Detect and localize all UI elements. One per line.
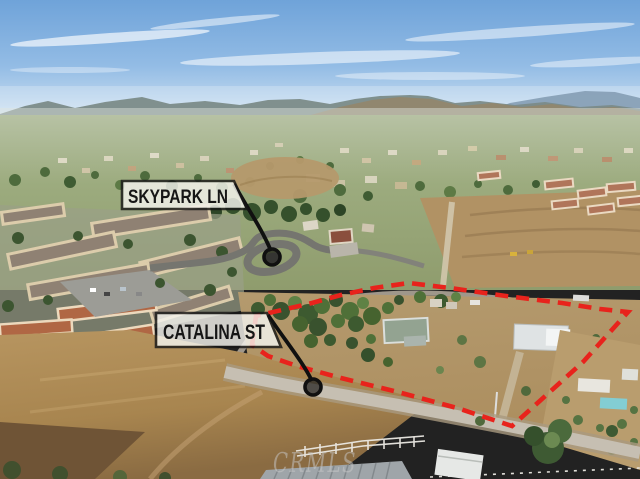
street-label-skypark: SKYPARK LN xyxy=(122,181,247,209)
aerial-listing-photo: SKYPARK LN CATALINA ST CRMLS xyxy=(0,0,640,479)
aerial-photo-canvas: SKYPARK LN CATALINA ST CRMLS xyxy=(0,0,640,479)
crmls-watermark: CRMLS xyxy=(273,448,357,479)
street-label-skypark-text: SKYPARK LN xyxy=(128,187,228,208)
street-label-catalina-text: CATALINA ST xyxy=(163,321,265,344)
street-label-catalina: CATALINA ST xyxy=(156,313,281,347)
catalina-endpoint-marker-icon xyxy=(305,379,321,395)
skypark-endpoint-marker-icon xyxy=(264,249,280,265)
